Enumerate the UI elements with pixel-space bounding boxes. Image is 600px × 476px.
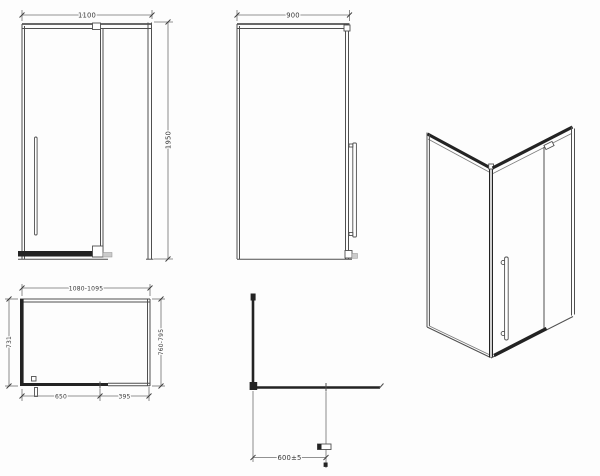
plan-right-depth-dimension: 760-795 (152, 297, 165, 389)
iso-door-handle (501, 257, 508, 340)
plan-guide-block (32, 377, 37, 382)
front-door-handle (35, 137, 38, 235)
plan-door-rail-label: 650 (55, 393, 67, 400)
side-panel-frame (237, 24, 352, 259)
plan-left-depth-dimension: 731 (5, 297, 18, 389)
side-bottom-step (352, 254, 358, 259)
corner-walls (250, 294, 384, 392)
corner-clamp-fitting (318, 444, 332, 450)
plan-left-depth-label: 731 (6, 336, 13, 348)
front-width-label: 1100 (78, 11, 96, 19)
iso-left-panel (427, 133, 491, 358)
front-height-dimension: 1950 (154, 20, 173, 262)
plan-wall-profile (20, 299, 24, 386)
plan-fixed-panel-label: 395 (118, 393, 130, 400)
plan-width-dimension: 1080-1095 (20, 284, 153, 296)
corner-support-label: 600±5 (278, 454, 302, 462)
side-view: 900 (235, 10, 358, 259)
iso-corner-post (489, 164, 494, 358)
side-width-label: 900 (286, 11, 300, 19)
side-door-handle (349, 143, 356, 237)
front-bottom-guide (93, 246, 104, 257)
side-bottom-foot (345, 251, 352, 259)
front-bottom-step (103, 253, 112, 258)
front-bottom-rail (18, 251, 101, 257)
side-width-dimension: 900 (235, 10, 353, 21)
front-width-dimension: 1100 (20, 10, 155, 21)
front-frame (18, 23, 154, 260)
front-height-label: 1950 (164, 131, 172, 149)
shower-enclosure-drawing: 1100 1950 (0, 0, 600, 476)
technical-drawing-canvas: 1100 1950 (0, 0, 600, 476)
plan-right-depth-label: 760-795 (158, 329, 165, 355)
front-top-roller (93, 23, 101, 30)
isometric-view (427, 127, 575, 359)
side-top-clip (344, 25, 350, 31)
corner-support-dimension: 600±5 (251, 391, 329, 468)
front-view: 1100 1950 (18, 10, 173, 262)
plan-bottom-dimensions: 650 395 (20, 387, 152, 401)
plan-support-bar (35, 388, 38, 397)
corner-detail-view: 600±5 (250, 294, 384, 469)
plan-width-label: 1080-1095 (69, 285, 104, 292)
corner-end-marker (324, 463, 328, 467)
plan-outline (20, 299, 150, 389)
iso-door-panel (491, 127, 575, 359)
plan-view: 1080-1095 731 (5, 284, 165, 401)
